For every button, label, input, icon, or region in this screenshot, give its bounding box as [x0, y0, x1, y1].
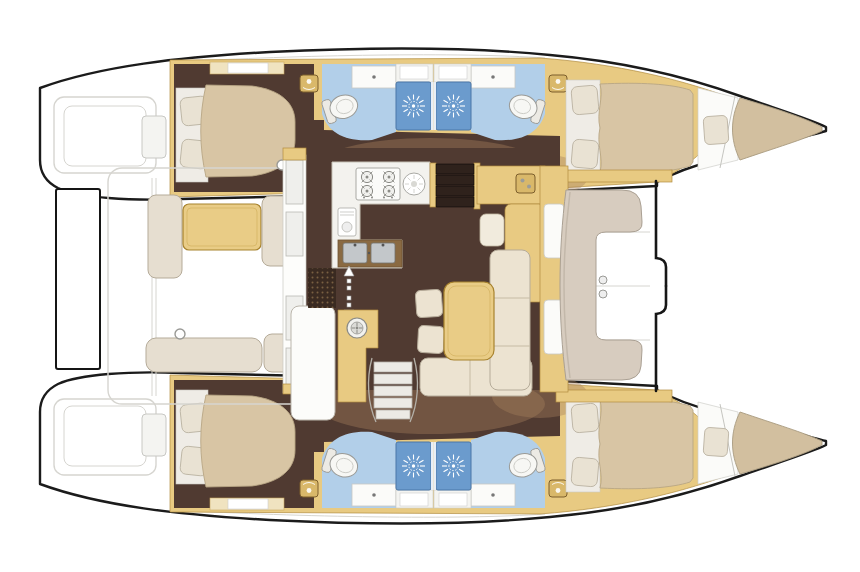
loose-cushion [415, 289, 443, 318]
floor-grate-dots [308, 268, 336, 308]
forward-seat [560, 190, 642, 380]
stairs-top-hull [430, 163, 480, 209]
salon-table [444, 282, 494, 360]
deck-ring [175, 329, 185, 339]
catamaran-floor-plan [0, 0, 860, 572]
cup-holder [599, 290, 607, 298]
nav-seat [480, 214, 504, 246]
cockpit-table [183, 204, 261, 250]
double-sink-icon [338, 240, 402, 267]
aft-platform [56, 189, 100, 369]
stair-rail [430, 163, 436, 207]
stairs-bottom-hull [369, 358, 418, 422]
aft-door-pane [286, 160, 303, 204]
loose-cushion [417, 325, 444, 353]
cup-holder [599, 276, 607, 284]
salon [283, 148, 560, 422]
washing-machine-icon [347, 318, 367, 338]
aft-counter-module [291, 306, 335, 420]
forward-cockpit [560, 190, 650, 380]
cockpit-bench-aft [146, 338, 262, 372]
appliance-icon [338, 208, 356, 236]
aft-door-pane [286, 212, 303, 256]
settee-bench [490, 250, 530, 390]
round-sink-icon [403, 173, 425, 195]
cockpit-bench-back [148, 195, 182, 278]
hatch-emblem-icon [516, 174, 535, 193]
floor-plan-stage [0, 0, 860, 572]
aft-wall-cap [283, 148, 306, 160]
